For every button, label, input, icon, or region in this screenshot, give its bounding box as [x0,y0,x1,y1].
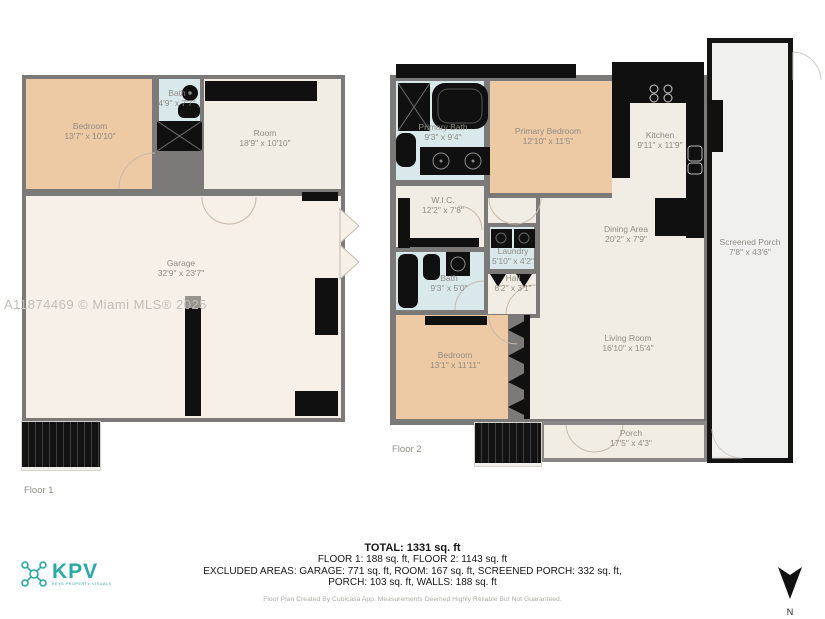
floor2-tag: Floor 2 [392,444,422,455]
room-dims: 9'3" x 5'0" [430,283,467,293]
north-compass: N [770,566,810,617]
room-name: Primary Bath [418,122,467,132]
room-name: Living Room [602,333,653,343]
room-dims: 13'7" x 10'10" [64,131,115,141]
room-corridor [488,198,536,223]
label-bedroom-floor1: Bedroom 13'7" x 10'10" [64,121,115,141]
room-name: Room [239,128,290,138]
kpv-logo: KPV KEYS PROPERTY VISUALS [20,560,112,588]
logo-tagline: KEYS PROPERTY VISUALS [52,582,112,586]
stairs-floor2 [475,423,541,466]
excluded-areas-2: PORCH: 103 sq. ft, WALLS: 188 sq. ft [0,577,825,589]
room-dims: 7'8" x 43'6" [720,247,781,257]
total-area: TOTAL: 1331 sq. ft [0,542,825,554]
label-primary-bath: Primary Bath 9'3" x 9'4" [418,122,467,142]
excluded-areas-1: EXCLUDED AREAS: GARAGE: 771 sq. ft, ROOM… [0,566,825,578]
room-dims: 4'9" x 7'7" [158,98,195,108]
room-dims: 32'9" x 23'7" [158,268,205,278]
room-name: Garage [158,258,205,268]
room-name: Bath [158,88,195,98]
room-dims: 16'10" x 15'4" [602,343,653,353]
room-name: Dining Area [604,224,648,234]
credit-line: Floor Plan Created By Cubicasa App. Meas… [0,596,825,603]
label-primary-bedroom: Primary Bedroom 12'10" x 11'5" [515,126,581,146]
label-laundry: Laundry 5'10" x 4'2" [492,246,534,266]
room-dims: 12'2" x 7'8" [422,205,464,215]
room-dims: 20'2" x 7'9" [604,234,648,244]
label-hall: Hall 6'2" x 3'1" [494,273,531,293]
label-bedroom-floor2: Bedroom 13'1" x 11'11" [430,350,480,370]
room-name: W.I.C. [422,195,464,205]
label-room-floor1: Room 18'9" x 10'10" [239,128,290,148]
room-name: Porch [610,428,652,438]
room-name: Screened Porch [720,237,781,247]
label-porch: Porch 17'5" x 4'3" [610,428,652,448]
door-arc [793,52,821,80]
drone-icon [20,560,48,588]
label-garage: Garage 32'9" x 23'7" [158,258,205,278]
room-living-extension [530,318,540,419]
room-name: Primary Bedroom [515,126,581,136]
room-name: Kitchen [637,130,682,140]
mls-watermark: A11874469 © Miami MLS® 2025 [4,297,207,312]
label-kitchen: Kitchen 9'11" x 11'9" [637,130,682,150]
room-name: Bedroom [430,350,480,360]
north-arrow-icon [770,566,810,602]
logo-text: KPV [52,562,112,582]
room-name: Hall [494,273,531,283]
room-dims: 12'10" x 11'5" [515,136,581,146]
room-dims: 9'3" x 9'4" [418,132,467,142]
compass-label: N [770,607,810,617]
room-dims: 18'9" x 10'10" [239,138,290,148]
label-bath-floor1: Bath 4'9" x 7'7" [158,88,195,108]
floor-plan-canvas: Bedroom 13'7" x 10'10" Bath 4'9" x 7'7" … [0,0,825,619]
room-dims: 9'11" x 11'9" [637,140,682,150]
stairs-floor1 [22,422,100,470]
room-dims: 17'5" x 4'3" [610,438,652,448]
floor-areas: FLOOR 1: 188 sq. ft, FLOOR 2: 1143 sq. f… [0,554,825,566]
floor1-tag: Floor 1 [24,485,54,496]
room-name: Bedroom [64,121,115,131]
room-dims: 13'1" x 11'11" [430,360,480,370]
label-bath-floor2: Bath 9'3" x 5'0" [430,273,467,293]
room-dims: 6'2" x 3'1" [494,283,531,293]
label-living-room: Living Room 16'10" x 15'4" [602,333,653,353]
area-summary: TOTAL: 1331 sq. ft FLOOR 1: 188 sq. ft, … [0,542,825,603]
label-screened-porch: Screened Porch 7'8" x 43'6" [720,237,781,257]
room-dims: 5'10" x 4'2" [492,256,534,266]
label-wic: W.I.C. 12'2" x 7'8" [422,195,464,215]
room-name: Bath [430,273,467,283]
label-dining: Dining Area 20'2" x 7'9" [604,224,648,244]
room-name: Laundry [492,246,534,256]
